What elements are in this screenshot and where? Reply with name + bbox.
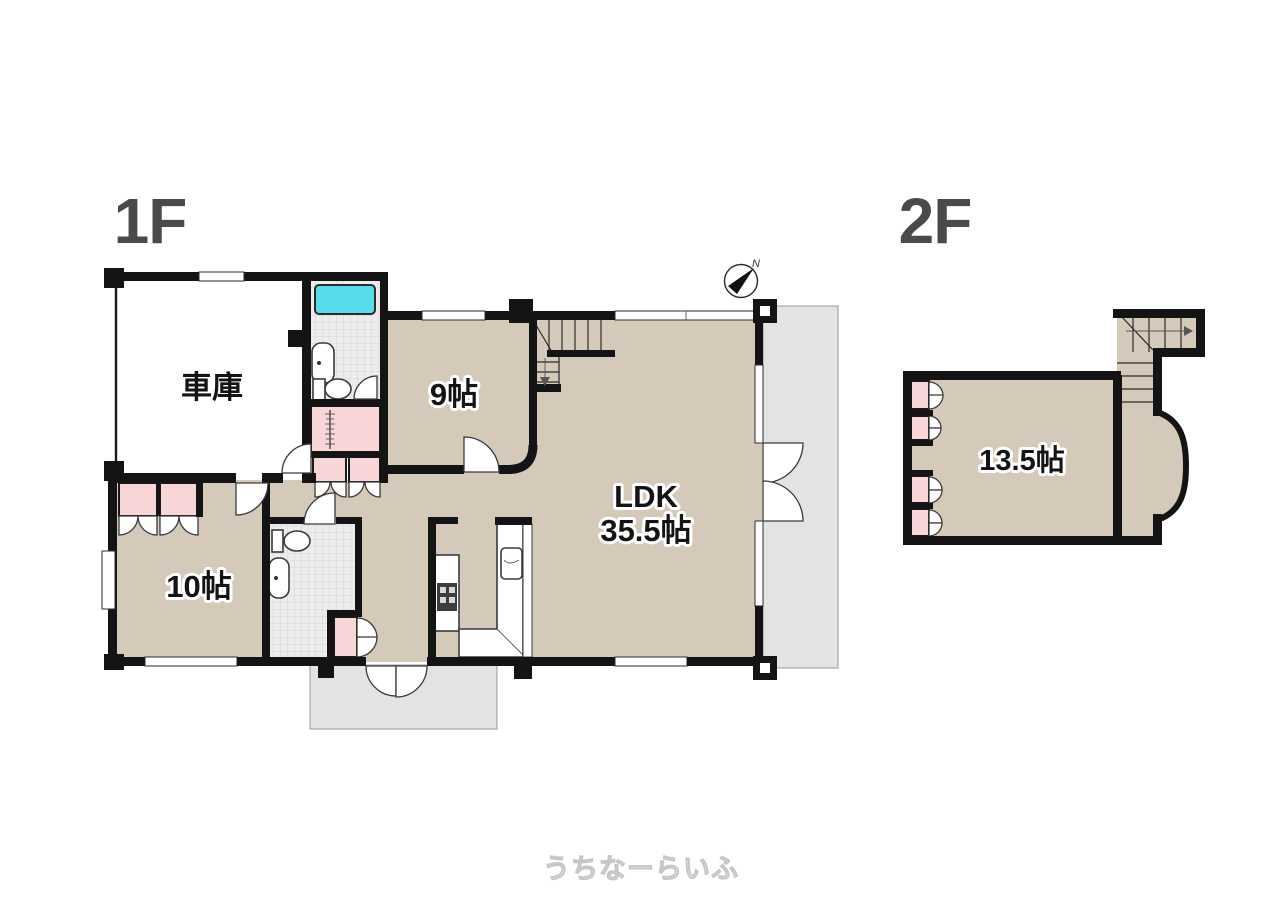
entry-closet: [334, 617, 377, 657]
room135-label: 13.5帖: [979, 444, 1064, 477]
bathtub: [315, 285, 375, 314]
compass-icon: N: [725, 258, 761, 298]
kitchen-sink-icon: [501, 548, 522, 579]
room10-label: 10帖: [166, 569, 231, 604]
floor-2f-title: 2F: [899, 185, 972, 257]
kitchen-divider-wall: [523, 524, 532, 657]
floor-plan-canvas: N 1F 車庫 9帖 LDK 35.5帖 10帖: [0, 0, 1280, 905]
toilet-bathroom-icon: [313, 379, 351, 400]
bathroom-sink-icon: [312, 343, 334, 383]
room9-label: 9帖: [430, 377, 478, 412]
compass-north-label: N: [752, 258, 760, 270]
stove-icon: [437, 583, 457, 611]
ldk-label: LDK: [614, 479, 678, 514]
toilet-washroom-icon: [272, 530, 310, 552]
floor-1f-plan: N 1F 車庫 9帖 LDK 35.5帖 10帖: [102, 185, 838, 729]
closet-hanger-1f: [311, 406, 380, 452]
floor-1f-title: 1F: [114, 185, 187, 257]
floor-2f-plan: 2F 13.5帖: [899, 185, 1205, 545]
hall-closets: [313, 456, 380, 497]
floor-plan-page: N 1F 車庫 9帖 LDK 35.5帖 10帖: [0, 0, 1280, 905]
garage-label: 車庫: [181, 370, 243, 405]
watermark-logo: うちなーらいふ: [543, 854, 739, 884]
washroom-sink-icon: [269, 558, 289, 598]
ldk-size-label: 35.5帖: [600, 513, 691, 548]
